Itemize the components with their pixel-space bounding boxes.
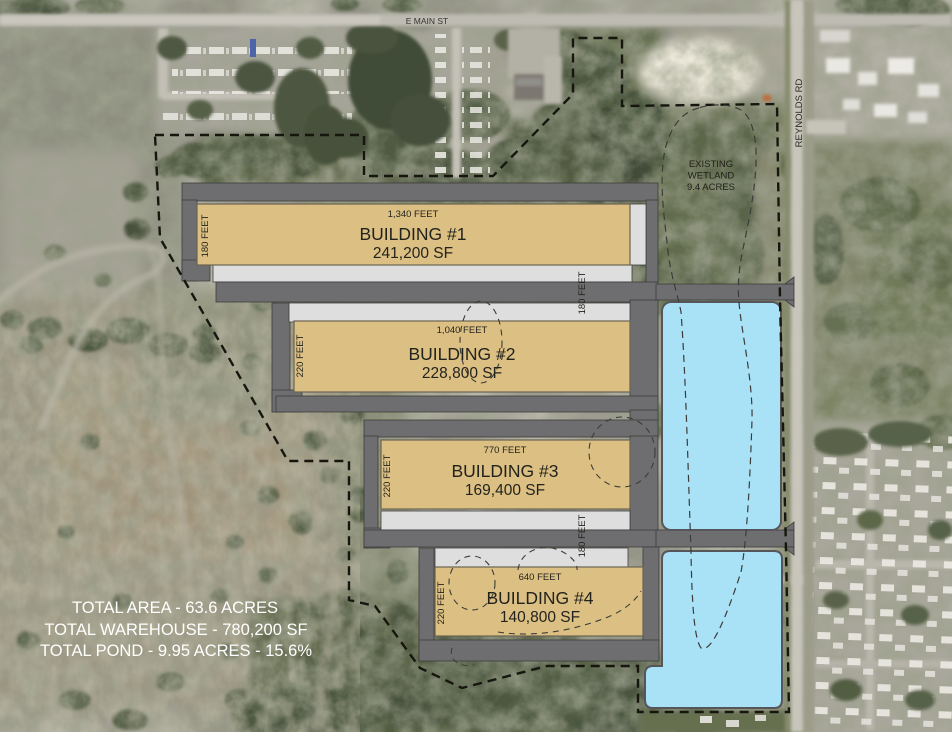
svg-text:169,400 SF: 169,400 SF <box>465 482 545 499</box>
svg-text:180 FEET: 180 FEET <box>577 271 588 314</box>
svg-text:REYNOLDS RD: REYNOLDS RD <box>794 79 805 148</box>
svg-text:EXISTING: EXISTING <box>689 159 733 170</box>
svg-text:TOTAL WAREHOUSE - 780,200 SF: TOTAL WAREHOUSE - 780,200 SF <box>44 621 307 639</box>
svg-text:9.4 ACRES: 9.4 ACRES <box>687 182 735 193</box>
svg-text:WETLAND: WETLAND <box>688 171 735 182</box>
svg-text:228,800 SF: 228,800 SF <box>422 365 502 382</box>
svg-text:E MAIN ST: E MAIN ST <box>406 16 449 26</box>
svg-text:140,800 SF: 140,800 SF <box>500 609 580 626</box>
svg-text:BUILDING #4: BUILDING #4 <box>487 588 594 608</box>
svg-text:241,200 SF: 241,200 SF <box>373 245 453 262</box>
svg-text:180 FEET: 180 FEET <box>577 514 588 557</box>
svg-text:BUILDING #1: BUILDING #1 <box>360 224 467 244</box>
svg-text:TOTAL AREA - 63.6 ACRES: TOTAL AREA - 63.6 ACRES <box>72 599 278 617</box>
svg-text:BUILDING #3: BUILDING #3 <box>452 461 559 481</box>
svg-text:220 FEET: 220 FEET <box>382 454 393 497</box>
svg-text:TOTAL POND - 9.95 ACRES - 15.6: TOTAL POND - 9.95 ACRES - 15.6% <box>40 642 312 660</box>
svg-text:1,040 FEET: 1,040 FEET <box>437 325 488 336</box>
svg-text:BUILDING #2: BUILDING #2 <box>409 344 516 364</box>
svg-text:180 FEET: 180 FEET <box>200 214 211 257</box>
svg-text:220 FEET: 220 FEET <box>295 334 306 377</box>
svg-text:770 FEET: 770 FEET <box>484 445 527 456</box>
svg-text:1,340 FEET: 1,340 FEET <box>388 209 439 220</box>
svg-text:640 FEET: 640 FEET <box>519 572 562 583</box>
svg-text:220 FEET: 220 FEET <box>436 581 447 624</box>
